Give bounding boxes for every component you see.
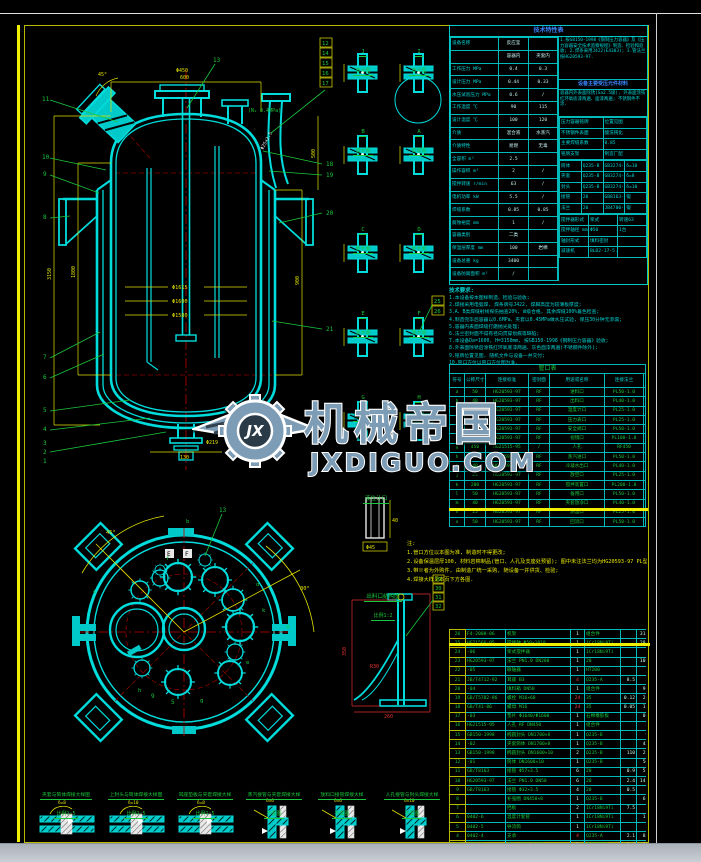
svg-text:13: 13 xyxy=(219,507,227,514)
spec-label: 腐蚀裕度 mm xyxy=(451,217,499,230)
part-code: GB150-1998 xyxy=(466,731,506,740)
parts-list: 26 F4-2008-06 机架 1 组合件 31.5 25 HG21566-9… xyxy=(449,629,646,843)
part-qty: 1 xyxy=(571,666,585,675)
svg-text:17: 17 xyxy=(322,81,329,87)
spec-value-vessel: / xyxy=(499,268,529,281)
part-unit-weight: 0.05 xyxy=(621,703,637,712)
part-name: 螺栓 M16×60 xyxy=(506,694,571,703)
material-grade: 20 xyxy=(581,193,603,204)
part-qty: 4 xyxy=(571,786,585,795)
agitator-internals xyxy=(147,98,219,370)
detail-title-C: C放大图 xyxy=(336,216,390,254)
spec-value-vessel: 2 xyxy=(499,165,529,178)
part-qty: 1 xyxy=(571,721,585,730)
material-part: 夹套 xyxy=(560,171,582,182)
svg-text:10: 10 xyxy=(42,154,50,161)
detail-title-discharge: 出料口结构图比例1:2 xyxy=(352,583,414,621)
nozzle-row: o50 HG20593-97RF 回流口PL50-1.0 xyxy=(450,518,646,527)
part-unit-weight: 0.5 xyxy=(621,786,637,795)
part-qty: 1 xyxy=(571,822,585,831)
spec-label: 电机功率 kW xyxy=(451,191,499,204)
part-name: 垫片 Φ505/Φ450 xyxy=(506,841,571,843)
parts-row: 24 -06 桨式搅拌器 1 1Cr18Ni9Ti 12 xyxy=(450,648,647,657)
spec-row: 设备防腐面积 m² / xyxy=(451,268,558,281)
spec-value-jacket: 无毒 xyxy=(529,140,558,153)
material-standard: JB4700-92 xyxy=(603,203,625,214)
parts-row: 16 HG21515-95 人孔 RF DN450 1 组合件 51 带盖 xyxy=(450,721,647,730)
spec-value-jacket xyxy=(529,38,558,51)
svg-text:e: e xyxy=(246,660,250,666)
part-code: 0402-4 xyxy=(466,832,506,841)
spec-value-jacket: / xyxy=(529,165,558,178)
material-part: 封头 xyxy=(560,182,582,193)
part-total-weight: 5.4 xyxy=(637,767,647,776)
part-code: GB/T41-86 xyxy=(466,703,506,712)
part-name: 筒体 DN1600×10 xyxy=(506,758,571,767)
part-code: 0402-5 xyxy=(466,822,506,831)
side-note-line: 3.带※者为外购件, 由制造厂统一采购, 随设备一并供货、检验; xyxy=(407,567,647,576)
part-code xyxy=(466,795,506,804)
svg-text:130: 130 xyxy=(180,455,189,461)
part-name: 垫片 Φ1640/Φ1600 xyxy=(506,712,571,721)
material-row: 夹套 Q235-B GB3274-88 δ=8 xyxy=(560,171,647,182)
part-qty: 1 xyxy=(571,740,585,749)
part-qty: 1 xyxy=(571,657,585,666)
part-qty: 6 xyxy=(571,767,585,776)
spec-label: 工作压力 MPa xyxy=(451,63,499,76)
detail-title-I: I放大图 xyxy=(392,38,446,76)
part-material: Q235-B xyxy=(585,731,621,740)
part-unit-weight: 0.12 xyxy=(621,694,637,703)
spec-value-vessel: 63 xyxy=(499,178,529,191)
spec-row: 水压试验压力 MPa 0.6 / xyxy=(451,89,558,102)
spec-label: 设备名称 xyxy=(451,38,499,51)
spec-label: 介质 xyxy=(451,127,499,140)
part-unit-weight: 0.9 xyxy=(621,767,637,776)
part-qty: 1 xyxy=(571,731,585,740)
svg-text:c: c xyxy=(93,589,96,595)
spec-value-jacket: 120 xyxy=(529,114,558,127)
svg-text:7: 7 xyxy=(43,354,47,361)
part-material: Q235-B xyxy=(585,795,621,804)
technical-requirement-line: 2.焊接采用电弧焊, 焊条牌号J422, 焊脚高度为较薄板厚度; xyxy=(449,302,646,309)
svg-text:F: F xyxy=(185,551,189,558)
part-name: 挡板 xyxy=(506,804,571,813)
svg-text:20: 20 xyxy=(326,210,334,217)
part-unit-weight xyxy=(621,795,637,804)
nozzle-row: l50 HG20593-97RF 备用口PL50-1.0 xyxy=(450,490,646,499)
spec-value-vessel: 100 xyxy=(499,114,529,127)
part-material: 组合件 xyxy=(585,721,621,730)
material-standard: GB3274-88 xyxy=(603,161,625,172)
part-name: 椭圆封头 DN1600×10 xyxy=(506,749,571,758)
drive-row: 搅拌轴径 mm Φ50 1台 xyxy=(560,225,647,236)
part-qty: 1 xyxy=(571,648,585,657)
part-material: 35 xyxy=(585,694,621,703)
part-total-weight: 0.8 xyxy=(637,841,647,843)
plate-row: 不锈钢件表面 酸洗钝化 xyxy=(560,128,647,139)
part-no: 5 xyxy=(450,822,466,831)
spec-row: 操作容积 m³ 2 / xyxy=(451,165,558,178)
parts-row: 14 -02 夹套筒体 DN1700×8 1 Q235-B 420 xyxy=(450,740,647,749)
material-grade: 20 xyxy=(581,203,603,214)
spec-label: 全容积 m³ xyxy=(451,153,499,166)
parts-row: 22 -05 联轴器 1 HT200 15 xyxy=(450,666,647,675)
part-material: 1Cr18Ni9Ti xyxy=(585,822,621,831)
spec-value-vessel: 二类 xyxy=(499,229,529,242)
spec-value-jacket xyxy=(529,255,558,268)
spec-label: 设计压力 MPa xyxy=(451,76,499,89)
material-table: 筒体 Q235-B GB3274-88 δ=10 夹套 Q235-B GB327… xyxy=(559,160,647,214)
part-qty: 6 xyxy=(571,777,585,786)
part-no: 7 xyxy=(450,804,466,813)
spec-row: 容器内 夹套内 xyxy=(451,50,558,63)
svg-text:g: g xyxy=(200,698,203,704)
weld-detail-title-5: 放料口接管焊接大样不需图 xyxy=(310,781,374,819)
svg-text:30°: 30° xyxy=(300,586,310,592)
svg-text:31: 31 xyxy=(435,595,442,601)
side-note-line: 注: xyxy=(407,540,647,549)
technical-requirements: 技术要求: 1.本设备按本图样制造、检验与验收;2.焊接采用电弧焊, 焊条牌号J… xyxy=(449,286,646,367)
cad-sheet: 3150 1800 600 Φ450 Φ1615 Φ1600 Φ1580 900… xyxy=(0,0,701,862)
svg-text:Φ1580: Φ1580 xyxy=(172,313,188,319)
parts-row: 13 GB150-1998 椭圆封头 DN1600×10 2 Q235-B 11… xyxy=(450,749,647,758)
part-no: 15 xyxy=(450,731,466,740)
parts-row: 15 GB150-1998 椭圆封头 DN1700×8 1 Q235-B 95 xyxy=(450,731,647,740)
weld-detail-title-1: 夹套与筒体焊接大样图比例1:5 xyxy=(34,781,98,819)
parts-row: 6 0402-6 温度计套管 1 1Cr18Ni9Ti 1.8 xyxy=(450,813,647,822)
plate-value: 位置见图 xyxy=(603,118,647,129)
spec-row: 电机功率 kW 5.5 / xyxy=(451,191,558,204)
inclined-nozzle xyxy=(74,81,141,148)
part-code: GB/T5782-86 xyxy=(466,694,506,703)
part-qty: 1 xyxy=(571,685,585,694)
part-no: 17 xyxy=(450,712,466,721)
plate-value: 0.85 xyxy=(603,139,647,150)
plate-row: 铭牌支架 制造厂配 xyxy=(560,149,647,160)
material-part: 接管 xyxy=(560,193,582,204)
part-qty: 1 xyxy=(571,630,585,639)
parts-row: 8 补强圈 DN450×8 1 Q235-B 6.5 xyxy=(450,795,647,804)
parts-row: 17 -03 垫片 Φ1640/Φ1600 1 石棉橡胶板 0.8 xyxy=(450,712,647,721)
svg-text:9: 9 xyxy=(43,171,47,178)
part-code: 0402-3 xyxy=(466,841,506,843)
spec-row: 介质 混合液 水蒸汽 xyxy=(451,127,558,140)
watermark-site: JXDIGUO.COM xyxy=(308,448,537,477)
spec-label: 水压试验压力 MPa xyxy=(451,89,499,102)
spec-table: 技术特性表 设备名称 反应釜 容器内 夹套内 工作压力 MPa 0.4 xyxy=(449,25,648,285)
side-note: 注:1.管口方位以本图为准, 制造时不得更改;2.设备保温层厚100, 材料岩棉… xyxy=(407,540,647,585)
part-total-weight: 2 xyxy=(637,786,647,795)
plate-label: 主要焊缝系数 xyxy=(560,139,604,150)
part-unit-weight xyxy=(621,721,637,730)
part-qty: 2 xyxy=(571,804,585,813)
part-name: 机架 xyxy=(506,630,571,639)
weld-detail-title-4: 蒸汽接管与夹套焊接大样不需图 xyxy=(242,781,306,819)
spec-row: 全容积 m³ 2.5 xyxy=(451,153,558,166)
spec-value-jacket: 115 xyxy=(529,101,558,114)
spec-value-vessel: 100 xyxy=(499,242,529,255)
part-total-weight: 15 xyxy=(637,666,647,675)
svg-text:21: 21 xyxy=(326,326,334,333)
part-total-weight: 14.4 xyxy=(637,777,647,786)
svg-text:15: 15 xyxy=(322,61,329,67)
part-unit-weight xyxy=(621,685,637,694)
part-total-weight: 420 xyxy=(637,740,647,749)
svg-text:16: 16 xyxy=(322,71,329,77)
svg-text:350: 350 xyxy=(342,647,348,656)
support-lug-right xyxy=(275,199,313,245)
side-note-line: 1.管口方位以本图为准, 制造时不得更改; xyxy=(407,549,647,558)
part-total-weight: 51 xyxy=(637,721,647,730)
watermark-brand: 机械帝国 xyxy=(304,399,504,450)
part-name: 螺母 M16 xyxy=(506,703,571,712)
spec-row: 设计温度 ℃ 100 120 xyxy=(451,114,558,127)
technical-requirement-line: 4.制造完毕后容器以0.6MPa、夹套以0.45MPa做水压试验, 保压30分钟… xyxy=(449,317,646,324)
part-unit-weight: 2.4 xyxy=(621,777,637,786)
detail-title-E: E放大图 xyxy=(336,300,390,338)
parts-row: 21 JB/T4712-92 耳座 B3 4 Q235-A 8.5 34 xyxy=(450,675,647,684)
watermark: JX 机械帝国 JXDIGUO.COM xyxy=(192,383,662,483)
plate-table: 压力容器铭牌 位置见图 不锈钢件表面 酸洗钝化 主要焊缝系数 0.85 铭牌支架… xyxy=(559,117,647,160)
part-unit-weight xyxy=(621,813,637,822)
detail-title-F: F放大图 xyxy=(392,300,446,338)
material-part: 法兰 xyxy=(560,203,582,214)
svg-text:k: k xyxy=(262,608,266,614)
part-code: F4-2008-06 xyxy=(466,630,506,639)
spec-label: 设备防腐面积 m² xyxy=(451,268,499,281)
material-standard: GB8163-87 xyxy=(603,193,625,204)
svg-text:h: h xyxy=(138,688,141,694)
part-total-weight: 220 xyxy=(637,749,647,758)
parts-row: 3 0402-3 垫片 Φ505/Φ450 2 石棉橡胶板 0.4 0.8 xyxy=(450,841,647,843)
material-row: 筒体 Q235-B GB3274-88 δ=10 xyxy=(560,161,647,172)
svg-text:a: a xyxy=(286,624,289,630)
svg-text:f: f xyxy=(166,556,169,562)
part-no: 18 xyxy=(450,703,466,712)
drive-label: 搅拌轴径 mm xyxy=(560,225,589,236)
parts-row: 12 -01 筒体 DN1600×10 1 Q235-B 560 xyxy=(450,758,647,767)
material-row: 接管 20 GB8163-87 锻 xyxy=(560,193,647,204)
svg-text:2: 2 xyxy=(43,449,47,456)
material-row: 封头 Q235-B GB3274-88 δ=10 xyxy=(560,182,647,193)
part-qty: 2 xyxy=(571,841,585,843)
surface-note: 容器内外表面除锈(Sa2.5级), 外表面涂铁红环氧底漆两遍、面漆两遍; 不锈钢… xyxy=(559,90,647,117)
spec-value-vessel: 易燃 xyxy=(499,140,529,153)
parts-row: 10 HG20593-97 法兰 PN1.0 DN50 6 20 2.4 14.… xyxy=(450,777,647,786)
drive-value: 桨式 xyxy=(589,215,618,226)
part-total-weight: 9.6 xyxy=(637,685,647,694)
drive-extra: 1台 xyxy=(618,225,647,236)
spec-value-jacket: / xyxy=(529,178,558,191)
svg-text:12: 12 xyxy=(322,41,329,47)
part-material: 组合件 xyxy=(585,630,621,639)
part-material: 1Cr18Ni9Ti xyxy=(585,804,621,813)
svg-text:(N₂ 0.4MPa): (N₂ 0.4MPa) xyxy=(248,108,281,114)
part-name: 接管 Φ57×3.5 xyxy=(506,767,571,776)
part-material: Q235-A xyxy=(585,675,621,684)
part-name: 填料箱 DN50 xyxy=(506,685,571,694)
material-part: 筒体 xyxy=(560,161,582,172)
part-unit-weight xyxy=(621,666,637,675)
parts-row: 4 0402-4 支承 4 Q235-A 2.1 8.4 xyxy=(450,832,647,841)
part-no: 22 xyxy=(450,666,466,675)
part-total-weight: 8.4 xyxy=(637,832,647,841)
spec-table-title: 技术特性表 xyxy=(450,26,647,37)
part-total-weight: 10.3 xyxy=(637,657,647,666)
svg-text:30: 30 xyxy=(435,586,442,592)
material-grade: Q235-B xyxy=(581,161,603,172)
spec-value-jacket: 水蒸汽 xyxy=(529,127,558,140)
part-name: 夹套筒体 DN1700×8 xyxy=(506,740,571,749)
spec-row: 工作压力 MPa 0.4 0.3 xyxy=(451,63,558,76)
spec-value-vessel: 0.44 xyxy=(499,76,529,89)
spec-row: 介质特性 易燃 无毒 xyxy=(451,140,558,153)
spec-row: 工作温度 ℃ 90 115 xyxy=(451,101,558,114)
svg-text:R30: R30 xyxy=(370,664,379,670)
plan-nozzle-letters: a b c d e f g h k xyxy=(93,519,289,704)
spec-value-vessel: 0.85 xyxy=(499,204,529,217)
part-qty: 24 xyxy=(571,703,585,712)
svg-text:45°: 45° xyxy=(98,72,107,78)
svg-text:6: 6 xyxy=(43,374,47,381)
part-qty: 4 xyxy=(571,675,585,684)
part-no: 11 xyxy=(450,767,466,776)
part-no: 19 xyxy=(450,694,466,703)
part-qty: 1 xyxy=(571,758,585,767)
spec-value-vessel: 容器内 xyxy=(499,50,529,63)
parts-row: 5 0402-5 导流筒 1 1Cr18Ni9Ti 22 xyxy=(450,822,647,831)
svg-text:500: 500 xyxy=(311,149,317,158)
part-total-weight: 95 xyxy=(637,731,647,740)
svg-text:1: 1 xyxy=(43,458,47,465)
spec-value-jacket xyxy=(529,153,558,166)
part-material: Q235-B xyxy=(585,740,621,749)
technical-requirement-line: 7.本设备Da=1600, H=3150mm, 按GB150-1998《钢制压力… xyxy=(449,338,646,345)
spec-row: 搅拌转速 r/min 63 / xyxy=(451,178,558,191)
plate-label: 不锈钢件表面 xyxy=(560,128,604,139)
part-material: 1Cr18Ni9Ti xyxy=(585,648,621,657)
part-code: HG21515-95 xyxy=(466,721,506,730)
part-name: 补强圈 DN450×8 xyxy=(506,795,571,804)
spec-value-jacket: 0.85 xyxy=(529,204,558,217)
spec-value-vessel: 90 xyxy=(499,101,529,114)
part-code xyxy=(466,804,506,813)
technical-requirement-line: 5.容器内表面焊缝打磨抛光处理; xyxy=(449,324,646,331)
part-unit-weight xyxy=(621,712,637,721)
svg-text:900: 900 xyxy=(295,276,301,285)
spec-label: 搅拌转速 r/min xyxy=(451,178,499,191)
part-material: 35 xyxy=(585,703,621,712)
svg-text:11: 11 xyxy=(42,96,50,103)
svg-text:d: d xyxy=(256,582,259,588)
parts-row: 9 GB/T8163 接管 Φ32×3.5 4 20 0.5 2 xyxy=(450,786,647,795)
drive-label: 搅拌器形式 xyxy=(560,215,589,226)
spec-row: 腐蚀裕度 mm 1 / xyxy=(451,217,558,230)
parts-row: 19 GB/T5782-86 螺栓 M16×60 24 35 0.12 2.9 xyxy=(450,694,647,703)
spec-value-vessel: 0.6 xyxy=(499,89,529,102)
spec-left-table: 设备名称 反应釜 容器内 夹套内 工作压力 MPa 0.4 0.3 设计压力 M… xyxy=(450,37,558,281)
part-code: GB/T8163 xyxy=(466,786,506,795)
svg-text:Φ45: Φ45 xyxy=(366,545,375,551)
technical-requirement-line: 6.法兰密封面不得有径向贯穿划痕等缺陷; xyxy=(449,331,646,338)
spec-value-vessel: 混合液 xyxy=(499,127,529,140)
part-unit-weight xyxy=(621,822,637,831)
part-no: 4 xyxy=(450,832,466,841)
part-total-weight: 34 xyxy=(637,675,647,684)
material-grade: Q235-B xyxy=(581,182,603,193)
spec-row: 设计压力 MPa 0.44 0.33 xyxy=(451,76,558,89)
part-qty: 1 xyxy=(571,795,585,804)
part-no: 26 xyxy=(450,630,466,639)
svg-text:19: 19 xyxy=(326,172,334,179)
part-material: Q235-B xyxy=(585,749,621,758)
materials-header: 设备主要受压元件材料 xyxy=(559,80,647,90)
drive-value: Φ50 xyxy=(589,225,618,236)
standards-note: 1.按GB150-1998《钢制压力容器》及《压力容器安全技术监察规程》制造、检… xyxy=(559,37,647,80)
spec-value-jacket: 0.3 xyxy=(529,63,558,76)
part-material: 石棉橡胶板 xyxy=(585,841,621,843)
technical-requirements-title: 技术要求: xyxy=(449,286,646,294)
parts-row: 11 GB/T8163 接管 Φ57×3.5 6 20 0.9 5.4 xyxy=(450,767,647,776)
part-unit-weight: 0.4 xyxy=(621,841,637,843)
plate-value: 酸洗钝化 xyxy=(603,128,647,139)
part-qty: 2 xyxy=(571,749,585,758)
weld-detail-title-6: 人孔接管与封头焊接大样不需图 xyxy=(380,781,444,819)
spec-value-jacket xyxy=(529,268,558,281)
drive-value: BLD2-17-5.5 xyxy=(589,247,618,258)
detail-title-J: J放大图 xyxy=(336,38,390,76)
part-code: -06 xyxy=(466,648,506,657)
svg-text:5: 5 xyxy=(43,407,47,414)
part-code: -02 xyxy=(466,740,506,749)
parts-row: 20 -04 填料箱 DN50 1 组合件 9.6 xyxy=(450,685,647,694)
spec-row: 焊缝系数 0.85 0.85 xyxy=(451,204,558,217)
plan-view: 45° 30° E F a b c d e f g h k 13 5 xyxy=(72,507,314,741)
level-gauge-detail: 40 Φ45 xyxy=(363,498,398,551)
plate-row: 压力容器铭牌 位置见图 xyxy=(560,118,647,129)
watermark-logo: JX xyxy=(194,395,316,467)
part-qty: 1 xyxy=(571,813,585,822)
weld-detail-title-3: 耳座垫板与夹套焊接大样比例1:5 xyxy=(173,781,237,819)
part-total-weight: 1.8 xyxy=(637,813,647,822)
part-unit-weight xyxy=(621,731,637,740)
spec-label: 保温层厚度 mm xyxy=(451,242,499,255)
material-remark: δ=10 xyxy=(625,161,647,172)
material-standard: GB3274-88 xyxy=(603,171,625,182)
part-material: 20 xyxy=(585,767,621,776)
spec-value-jacket: 岩棉 xyxy=(529,242,558,255)
drive-extra xyxy=(618,247,647,258)
part-code: -05 xyxy=(466,666,506,675)
svg-text:9: 9 xyxy=(151,693,155,700)
spec-value-jacket xyxy=(529,229,558,242)
svg-text:260: 260 xyxy=(384,714,393,720)
material-remark: δ=8 xyxy=(625,171,647,182)
spec-label: 介质特性 xyxy=(451,140,499,153)
watermark-logo-text: JX xyxy=(243,422,265,440)
part-material: HT200 xyxy=(585,666,621,675)
part-name: 耳座 B3 xyxy=(506,675,571,684)
part-unit-weight xyxy=(621,630,637,639)
svg-text:13: 13 xyxy=(213,57,221,64)
part-total-weight: 0.8 xyxy=(637,712,647,721)
part-no: 20 xyxy=(450,685,466,694)
spec-value-vessel: 2.5 xyxy=(499,153,529,166)
part-unit-weight: 8.5 xyxy=(621,675,637,684)
technical-requirement-line: 3.A、B类焊缝射线探伤抽查20%, Ⅲ级合格, 其余焊缝100%着色检查; xyxy=(449,309,646,316)
spec-value-vessel: 反应釜 xyxy=(499,38,529,51)
